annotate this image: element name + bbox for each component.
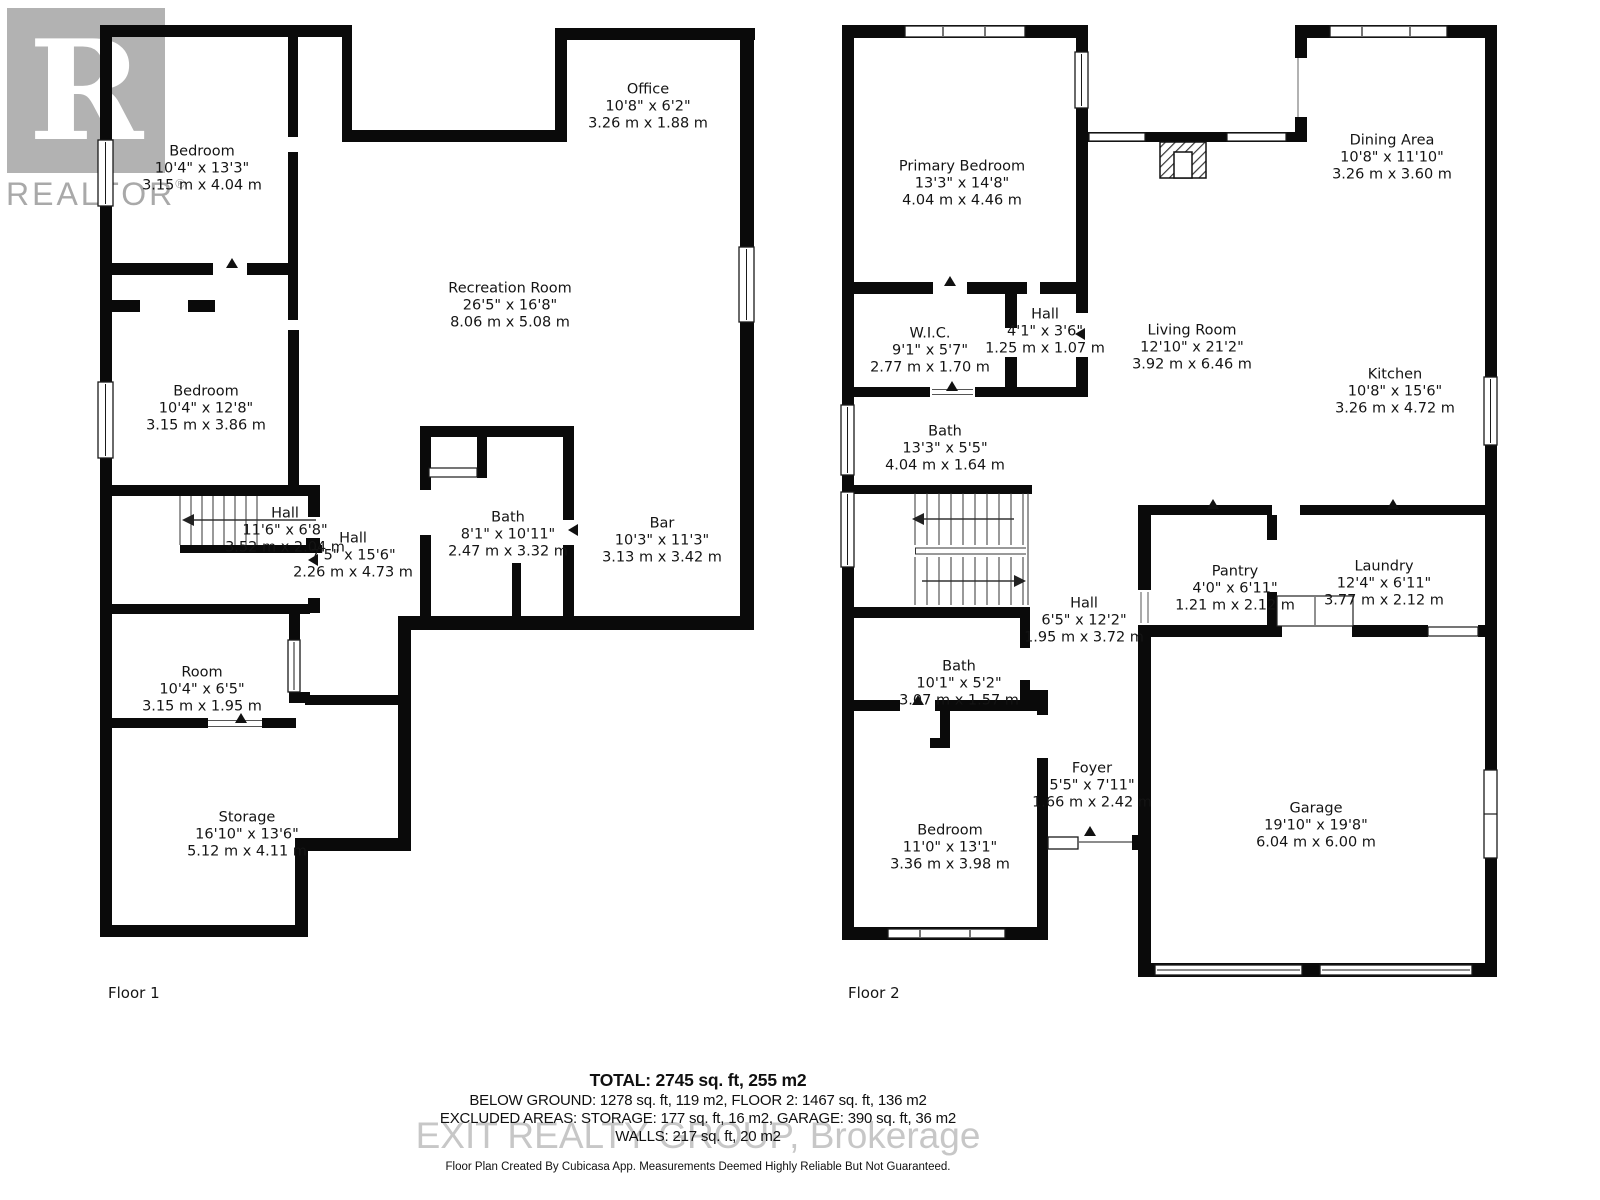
floor-plan-page: R REALTOR® EXIT REALTY GROUP, Brokerage [0,0,1600,1200]
summary-walls: WALLS: 217 sq. ft, 20 m2 [615,1128,781,1145]
summary-below-ground: BELOW GROUND: 1278 sq. ft, 119 m2, FLOOR… [469,1092,926,1109]
room-label-primary-bedroom: Primary Bedroom 13'3" x 14'8" 4.04 m x 4… [899,159,1025,210]
summary-excluded-areas: EXCLUDED AREAS: STORAGE: 177 sq. ft, 16 … [440,1110,956,1127]
room-label-hall-upper: Hall 4'1" x 3'6" 1.25 m x 1.07 m [985,307,1105,358]
room-label-room: Room 10'4" x 6'5" 3.15 m x 1.95 m [142,665,262,716]
room-label-bedroom-2: Bedroom 10'4" x 12'8" 3.15 m x 3.86 m [146,384,266,435]
room-label-laundry: Laundry 12'4" x 6'11" 3.77 m x 2.12 m [1324,559,1444,610]
room-label-bedroom-1: Bedroom 10'4" x 13'3" 3.15 m x 4.04 m [142,144,262,195]
floor1-label: Floor 1 [108,984,160,1002]
room-label-foyer: Foyer 5'5" x 7'11" 1.66 m x 2.42 m [1032,761,1152,812]
room-label-garage: Garage 19'10" x 19'8" 6.04 m x 6.00 m [1256,801,1376,852]
room-label-hall-2: Hall 7'5" x 15'6" 2.26 m x 4.73 m [293,531,413,582]
room-label-living-room: Living Room 12'10" x 21'2" 3.92 m x 6.46… [1132,323,1252,374]
floor2-stairs-icon [912,493,1028,605]
room-label-dining-area: Dining Area 10'8" x 11'10" 3.26 m x 3.60… [1332,133,1452,184]
fireplace-icon [1160,142,1206,178]
summary-disclaimer: Floor Plan Created By Cubicasa App. Meas… [446,1161,951,1173]
room-label-wic: W.I.C. 9'1" x 5'7" 2.77 m x 1.70 m [870,326,990,377]
room-label-pantry: Pantry 4'0" x 6'11" 1.21 m x 2.12 m [1175,564,1295,615]
room-label-office: Office 10'8" x 6'2" 3.26 m x 1.88 m [588,82,708,133]
room-label-bath-main: Bath 13'3" x 5'5" 4.04 m x 1.64 m [885,424,1005,475]
room-label-recreation-room: Recreation Room 26'5" x 16'8" 8.06 m x 5… [448,281,571,332]
room-label-bedroom-3: Bedroom 11'0" x 13'1" 3.36 m x 3.98 m [890,823,1010,874]
room-label-bath-lower: Bath 10'1" x 5'2" 3.07 m x 1.57 m [899,659,1019,710]
room-label-hall-lower: Hall 6'5" x 12'2" 1.95 m x 3.72 m [1024,596,1144,647]
room-label-bath-1: Bath 8'1" x 10'11" 2.47 m x 3.32 m [448,510,568,561]
room-label-bar: Bar 10'3" x 11'3" 3.13 m x 3.42 m [602,516,722,567]
summary-total: TOTAL: 2745 sq. ft, 255 m2 [590,1070,807,1091]
room-label-kitchen: Kitchen 10'8" x 15'6" 3.26 m x 4.72 m [1335,367,1455,418]
floor2-label: Floor 2 [848,984,900,1002]
room-label-storage: Storage 16'10" x 13'6" 5.12 m x 4.11 m [187,810,307,861]
